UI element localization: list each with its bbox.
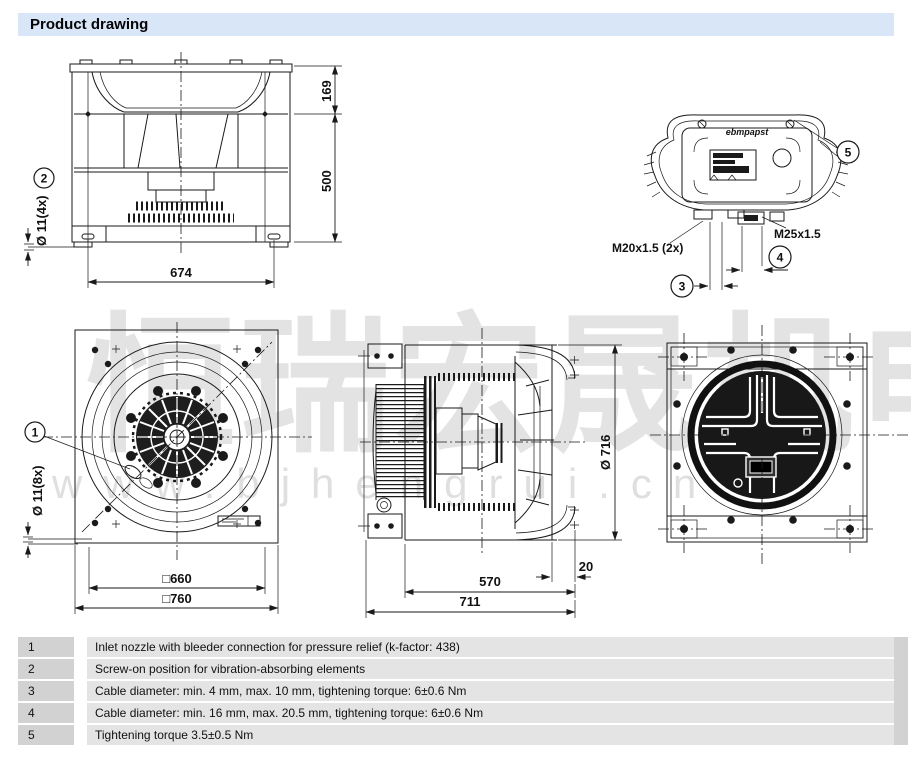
svg-text:2: 2 [41, 172, 48, 186]
front-view-drawing: 1 Ø 11(8x) □660 □760 [20, 320, 320, 620]
rating-label [710, 150, 756, 180]
terminal-box-drawing: ebmpapst 5 M20x1.5 (2x) M25x1.5 3 [590, 100, 910, 305]
table-row: 1 Inlet nozzle with bleeder connection f… [18, 637, 908, 657]
depth-view-drawing: Ø 716 20 570 711 [330, 320, 640, 620]
front-frame [42, 322, 312, 560]
table-row: 3 Cable diameter: min. 4 mm, max. 10 mm,… [18, 681, 908, 701]
impeller-section [515, 356, 554, 529]
legend-number: 5 [18, 725, 74, 745]
table-row: 4 Cable diameter: min. 16 mm, max. 20.5 … [18, 703, 908, 723]
dim-716: Ø 716 [598, 435, 613, 470]
dim-660: □660 [162, 571, 192, 586]
annotations: 5 M20x1.5 (2x) M25x1.5 3 4 [612, 120, 859, 297]
terminal-box-outline: ebmpapst [644, 115, 848, 224]
gland-m25-label: M25x1.5 [774, 227, 821, 241]
dim-760: □760 [162, 591, 192, 606]
legend-number: 4 [18, 703, 74, 723]
dim-169: 169 [319, 80, 334, 102]
centerlines [360, 328, 588, 556]
dim-500: 500 [319, 170, 334, 192]
dimensions: Ø 716 20 570 711 [366, 345, 622, 618]
table-row: 2 Screw-on position for vibration-absorb… [18, 659, 908, 679]
dim-20: 20 [579, 559, 593, 574]
svg-text:3: 3 [679, 280, 686, 294]
callout-2: 2 [34, 168, 54, 188]
legend-text: Cable diameter: min. 16 mm, max. 20.5 mm… [87, 703, 908, 723]
dim-570: 570 [479, 574, 501, 589]
rear-view-drawing [650, 325, 911, 570]
svg-text:5: 5 [845, 146, 852, 160]
legend-number: 3 [18, 681, 74, 701]
legend-text: Tightening torque 3.5±0.5 Nm [87, 725, 908, 745]
legend-text: Cable diameter: min. 4 mm, max. 10 mm, t… [87, 681, 908, 701]
dim-711: 711 [460, 594, 481, 609]
svg-text:1: 1 [32, 426, 39, 440]
gland-m20-label: M20x1.5 (2x) [612, 241, 683, 255]
brand-logo-text: ebmpapst [726, 127, 770, 137]
legend-text: Screw-on position for vibration-absorbin… [87, 659, 908, 679]
side-elevation-drawing: 169 500 674 Ø 11(4x) 2 [20, 50, 350, 305]
motor [373, 377, 516, 512]
hole-spec-label: Ø 11(8x) [30, 465, 45, 516]
dim-674: 674 [170, 265, 192, 280]
page-title: Product drawing [18, 13, 894, 36]
cable-glands [694, 210, 784, 224]
legend-text: Inlet nozzle with bleeder connection for… [87, 637, 908, 657]
table-row: 5 Tightening torque 3.5±0.5 Nm [18, 725, 908, 745]
legend-number: 1 [18, 637, 74, 657]
fan-housing-outline [70, 52, 292, 255]
legend-number: 2 [18, 659, 74, 679]
housing-section [358, 328, 588, 556]
hole-spec-label: Ø 11(4x) [34, 195, 49, 246]
svg-text:4: 4 [777, 251, 784, 265]
legend-right-strip [894, 637, 908, 745]
nameplate [218, 516, 260, 526]
legend-table: 1 Inlet nozzle with bleeder connection f… [18, 637, 908, 747]
